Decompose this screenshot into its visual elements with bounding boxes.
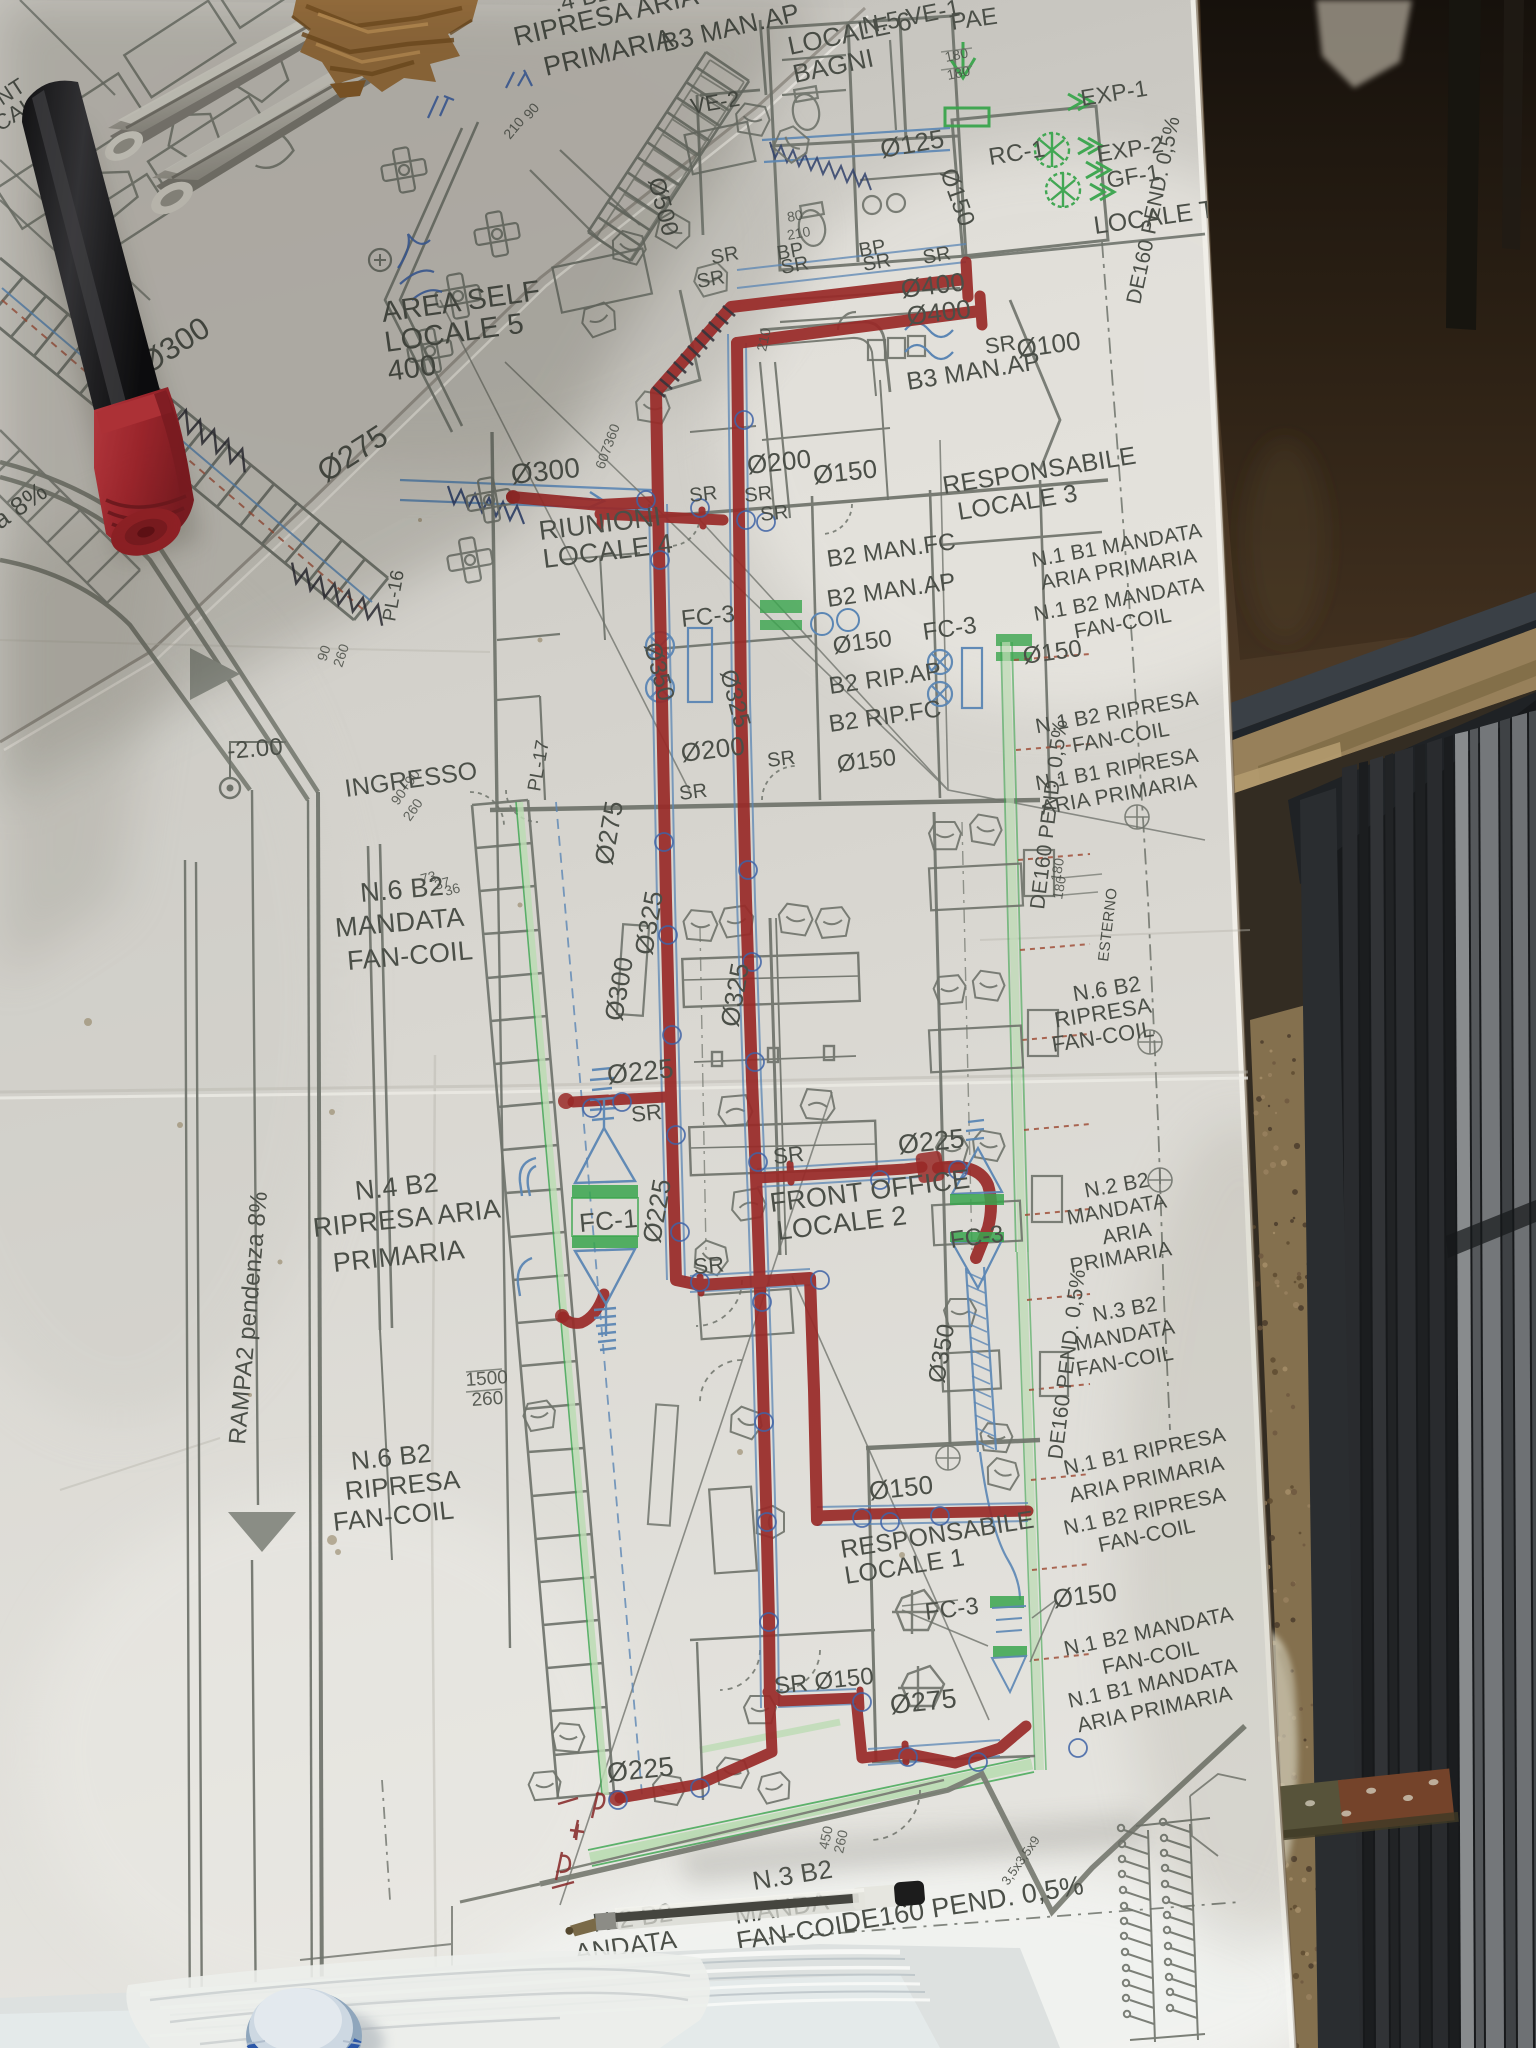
svg-text:SR: SR [759, 501, 789, 526]
svg-text:SR: SR [772, 1141, 805, 1169]
svg-text:SR: SR [688, 482, 718, 507]
svg-text:260: 260 [471, 1388, 504, 1411]
svg-text:-2.00: -2.00 [226, 733, 284, 765]
svg-text:SR: SR [692, 1251, 725, 1279]
svg-text:SR: SR [678, 780, 709, 805]
svg-text:80: 80 [786, 206, 804, 224]
svg-text:FC-1: FC-1 [578, 1203, 639, 1238]
svg-text:SR: SR [766, 747, 797, 772]
svg-text:FC-3: FC-3 [680, 600, 737, 633]
svg-text:SR: SR [630, 1099, 663, 1127]
